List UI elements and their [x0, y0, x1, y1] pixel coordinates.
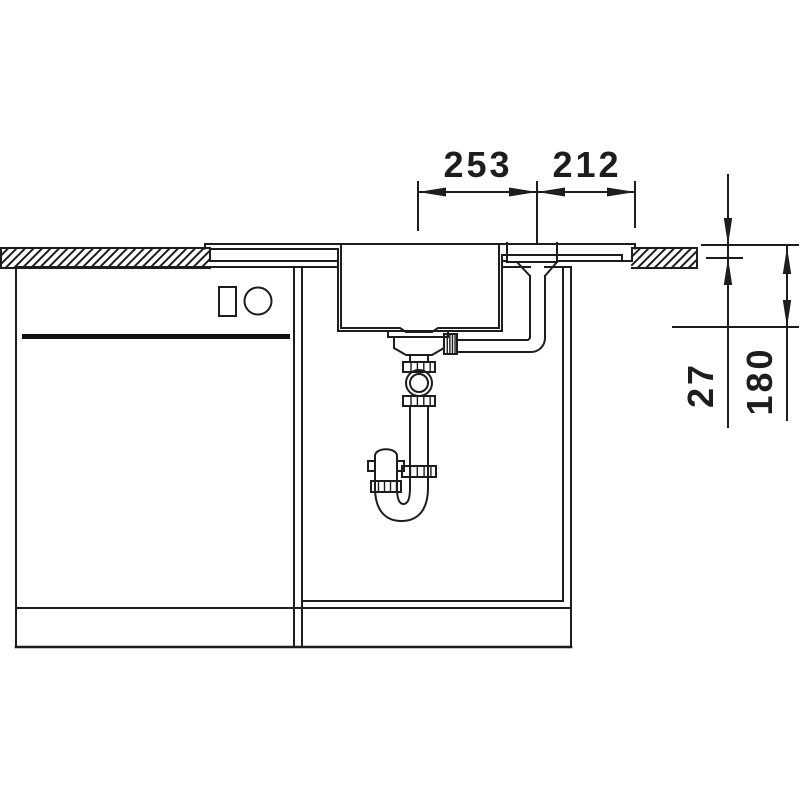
sink-deck	[205, 244, 635, 261]
overflow-drain-pipe	[457, 243, 557, 352]
sink-installation-drawing: 253 212 27 180	[0, 0, 800, 800]
dimension-top-group	[418, 182, 635, 244]
countertop-right-hatch	[632, 248, 697, 268]
sink-bowl	[338, 244, 502, 332]
appliance-control-knob	[245, 288, 272, 315]
appliance-control-slot	[219, 287, 236, 316]
countertop-left-hatch	[0, 248, 210, 268]
dimension-label-253: 253	[418, 147, 538, 183]
dimension-label-212: 212	[528, 147, 646, 183]
dimension-label-180: 180	[742, 346, 778, 415]
drain-strainer	[388, 331, 457, 488]
cabinet-left-appliance	[16, 267, 338, 647]
dimension-label-27: 27	[683, 362, 719, 408]
siphon-trap	[368, 449, 428, 521]
